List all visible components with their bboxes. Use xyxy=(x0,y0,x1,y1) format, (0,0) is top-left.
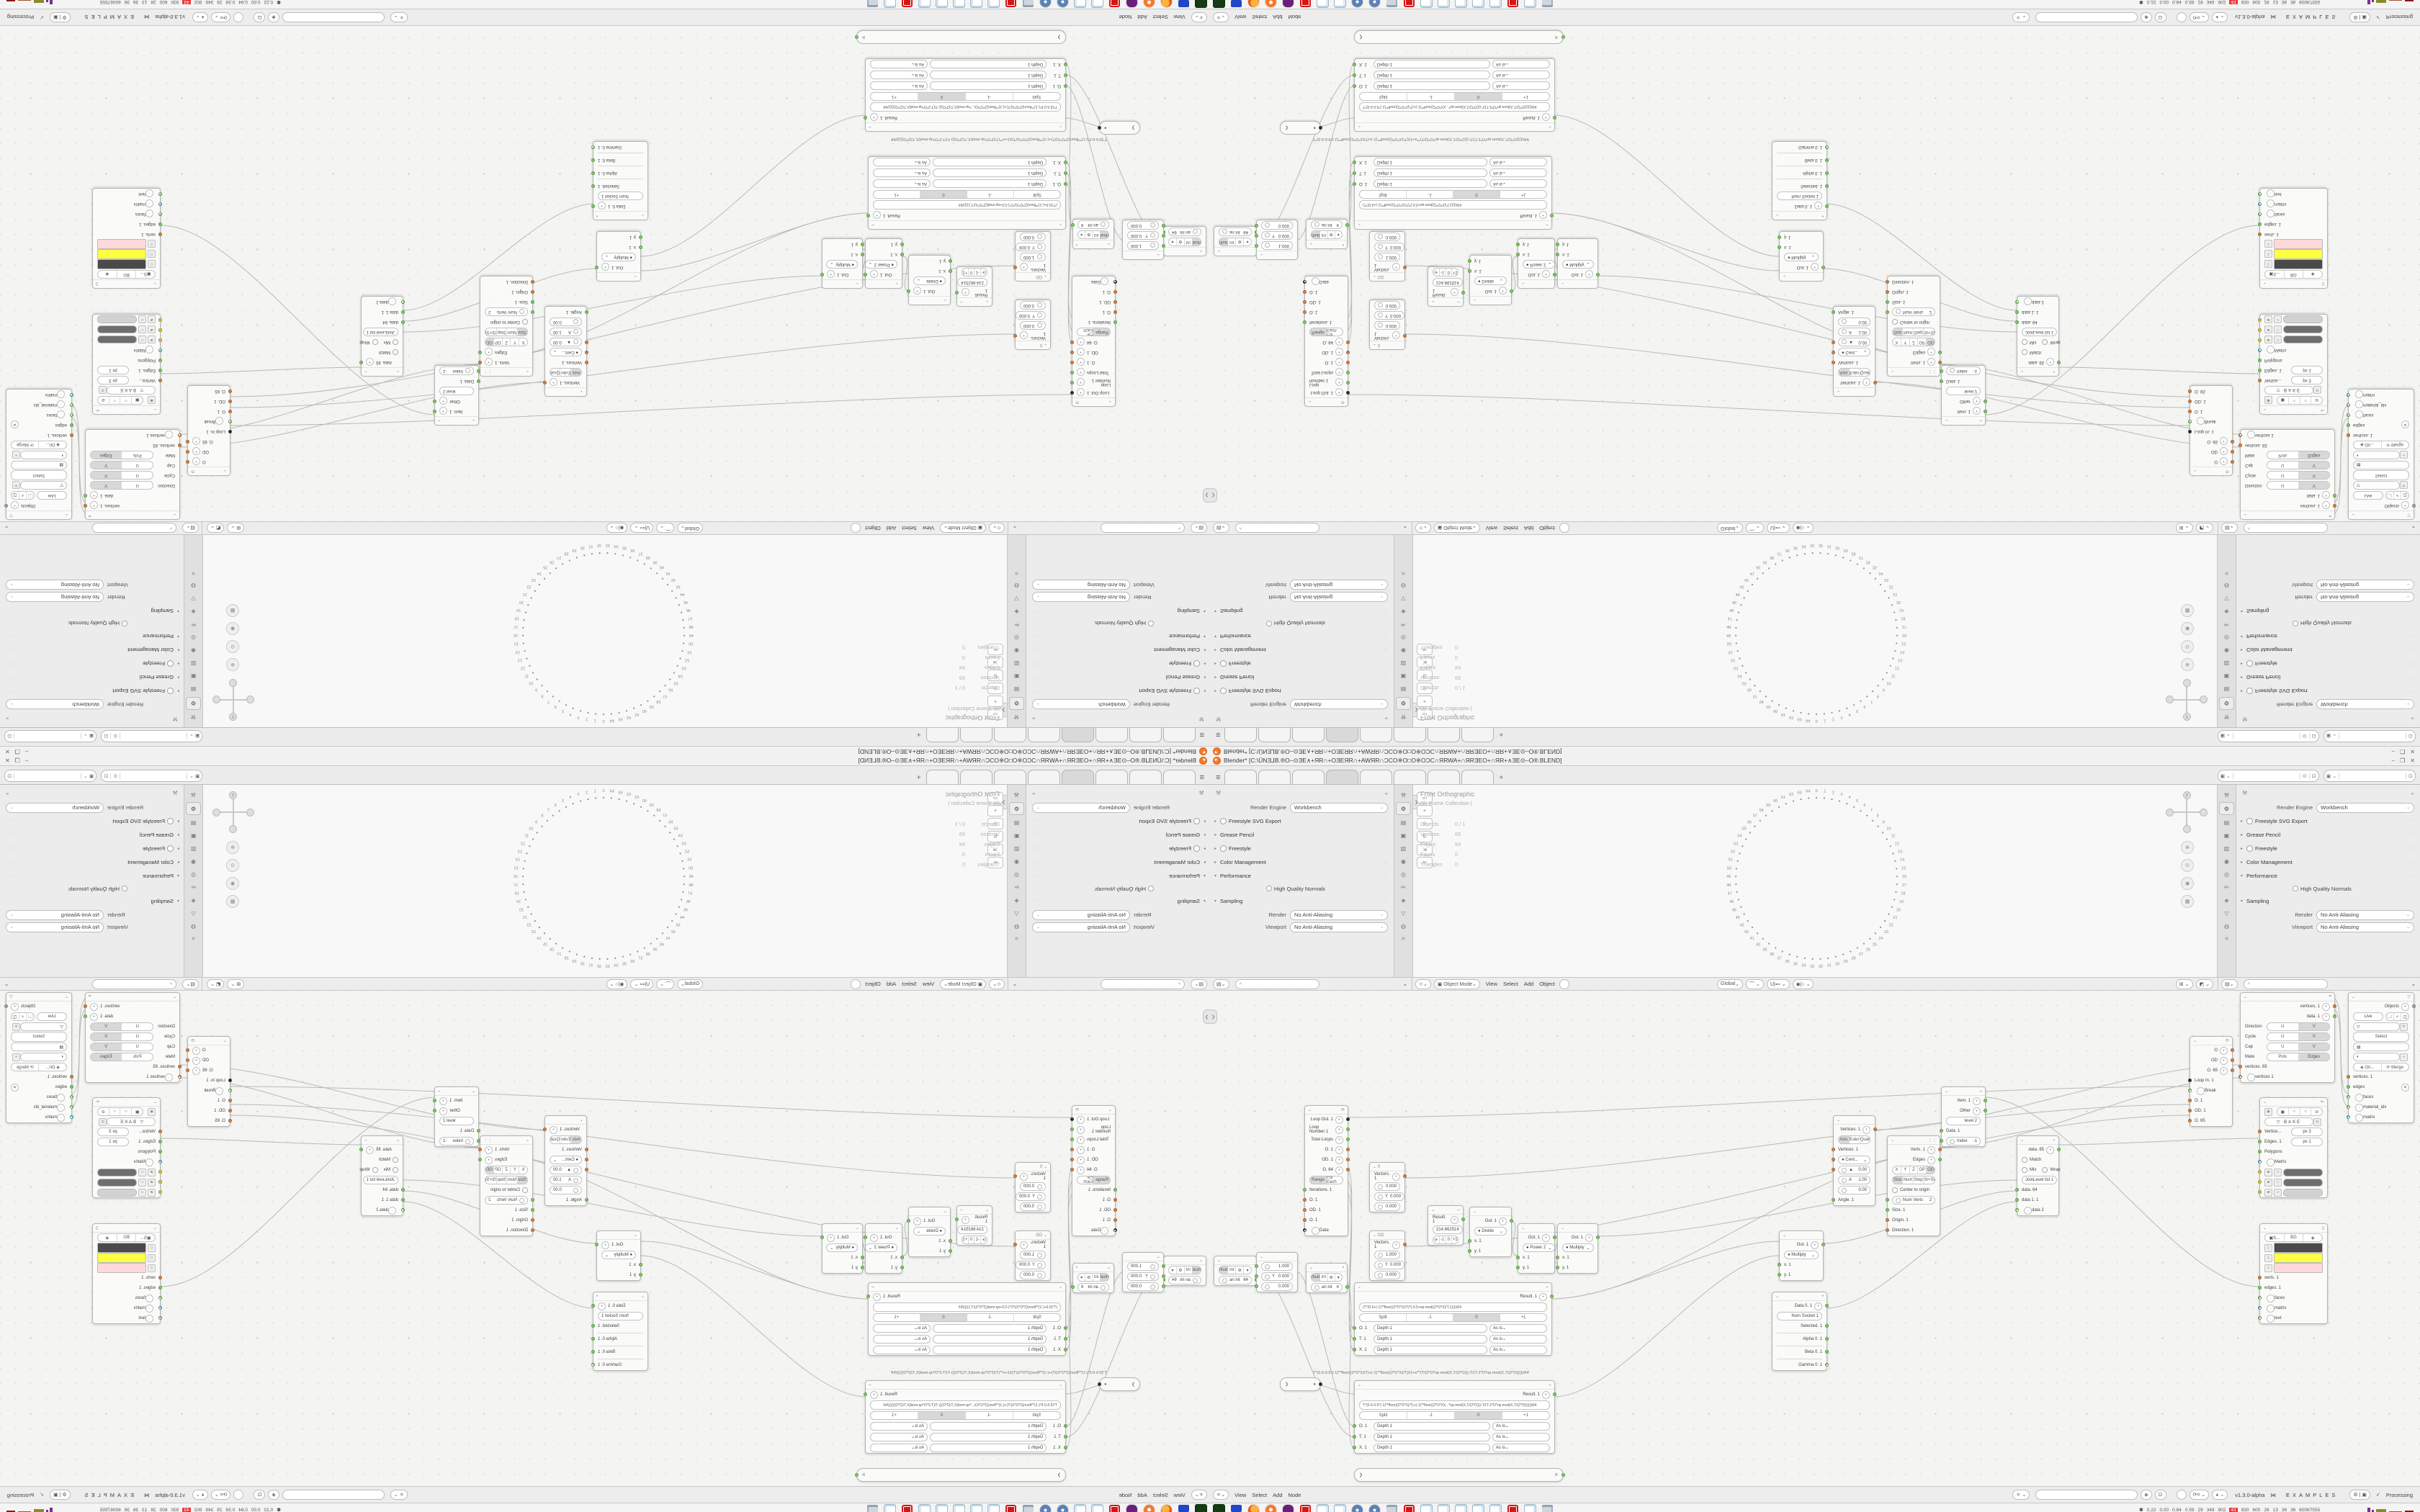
properties-tab-icon[interactable]: ◍ xyxy=(187,920,200,932)
segment-Split[interactable]: Split xyxy=(1360,1412,1407,1419)
taskbar-icon-gimp[interactable] xyxy=(1126,0,1137,8)
px-field[interactable]: px 1 xyxy=(2291,1138,2323,1146)
node-vector-0[interactable]: ⌄ 0Vectors. 1▾0.000Y0.0000.000 xyxy=(1369,1162,1405,1212)
segment-+1[interactable]: +1 xyxy=(871,1412,918,1419)
prop-check-6[interactable]: High Quality Normals xyxy=(2293,883,2420,894)
swatch-tool-icon[interactable]: ▯ xyxy=(2264,1264,2272,1272)
workspace-tab[interactable] xyxy=(1326,770,1358,784)
expand-arrow-icon[interactable]: ▾ xyxy=(1214,899,1220,904)
gizmo-ball[interactable]: Z xyxy=(2183,713,2191,721)
slider-icon[interactable]: ▱ xyxy=(2274,1179,2282,1187)
workspace-tab[interactable] xyxy=(1224,728,1257,742)
node-header[interactable]: ⌄ ⟳ xyxy=(2190,467,2232,475)
dropdown-arrow-icon[interactable]: ▾ xyxy=(2322,492,2330,500)
menu-view[interactable]: View xyxy=(923,981,934,987)
live-icon[interactable]: ◫ xyxy=(12,492,19,499)
live-icon[interactable]: ⚡ xyxy=(2394,492,2402,499)
node-vector-od[interactable]: ⌄ ODVectors. 1▾1.000Y0.0000.000 xyxy=(1015,1230,1051,1281)
wrap-select[interactable]: As is ⌄ xyxy=(873,180,931,189)
taskbar-icon-note[interactable] xyxy=(1473,1505,1484,1512)
node-formula-2[interactable]: ⌄ ⌐Result. 1▾T*(0.5-0.5*(-1)**floor((2*O… xyxy=(865,58,1066,132)
live-button[interactable]: Live xyxy=(37,1012,67,1021)
prop-section-freestyle-svg-export[interactable]: ▸Freestyle SVG Export:::: xyxy=(2241,684,2414,698)
depth-field[interactable]: Depth 1 xyxy=(1373,1335,1487,1344)
segment-⚙[interactable]: ⚙ xyxy=(1176,1266,1184,1274)
menu-view[interactable]: View xyxy=(1174,1492,1186,1498)
properties-tab-icon[interactable]: ◍ xyxy=(2220,920,2233,932)
taskbar-icon-cd[interactable] xyxy=(1352,0,1363,8)
node-header[interactable]: ⌄ ⌗ xyxy=(2241,993,2334,1002)
color-slider[interactable] xyxy=(2283,326,2323,334)
number-field[interactable]: Num Verts2 xyxy=(485,1196,528,1205)
radio-toggle[interactable] xyxy=(2246,818,2253,824)
wrap-select[interactable]: As is ⌄ xyxy=(1492,60,1550,69)
node-formula-1[interactable]: ⌄ ⌐Result. 1▾(T*(0.5+(-1)**floor((2*O*X)… xyxy=(868,1282,1066,1356)
number-field[interactable]: 0.000 xyxy=(1374,1182,1400,1191)
scene-name-field[interactable] xyxy=(120,770,187,781)
properties-tab-icon[interactable]: ◉ xyxy=(2220,645,2233,657)
dropdown-arrow-icon[interactable]: ▾ xyxy=(870,114,878,122)
node-header[interactable]: ⌄ xyxy=(1834,387,1875,396)
editor-type-button[interactable]: ▤ ⌄ xyxy=(2221,523,2238,534)
taskbar-icon-note[interactable] xyxy=(1473,0,1484,8)
checkbox[interactable] xyxy=(522,319,528,325)
editor-type-button[interactable]: ⚛ ⌄ xyxy=(1213,12,1229,22)
menu-select[interactable]: Select xyxy=(1153,1492,1168,1498)
segment-Split[interactable]: Split xyxy=(1013,191,1060,198)
formula-input[interactable]: (T*(0.5+(-1)**floor((2*O*X)/T)*(-0.5+np.… xyxy=(1359,1302,1547,1312)
collapsed-node-0[interactable]: ❯● xyxy=(1280,121,1321,135)
taskbar-icon-gimp[interactable] xyxy=(1283,1505,1294,1512)
prop-section-freestyle-svg-export[interactable]: ▸Freestyle SVG Export:::: xyxy=(6,684,179,698)
taskbar-icon-blender[interactable] xyxy=(1265,0,1276,8)
node-header[interactable]: ⌄ xyxy=(1257,1253,1297,1261)
properties-tab-icon[interactable]: ⚙ xyxy=(186,802,201,815)
menu-burger-icon[interactable]: ≡ xyxy=(1200,730,1204,739)
dropdown-arrow-icon[interactable]: ▾ xyxy=(1973,397,1981,405)
taskbar-icon-cd[interactable] xyxy=(1057,0,1068,8)
shield-button[interactable]: ◈ xyxy=(268,1490,279,1500)
prop-select[interactable]: No Anti-Aliasing⌄ xyxy=(2316,922,2414,932)
segment-For Each[interactable]: For Each xyxy=(1077,1176,1093,1184)
menu-add[interactable]: Add xyxy=(1524,981,1533,987)
viewport-nav-icon[interactable]: ▦ xyxy=(2181,604,2194,617)
properties-tab-icon[interactable]: ▥ xyxy=(187,842,200,854)
prop-check-6[interactable]: High Quality Normals xyxy=(2293,618,2420,629)
menu-select[interactable]: Select xyxy=(902,525,917,531)
taskbar-icon-note[interactable] xyxy=(1075,0,1085,8)
expand-arrow-icon[interactable]: ▸ xyxy=(174,661,179,666)
segment-OD[interactable]: OD xyxy=(485,1166,493,1174)
properties-tab-icon[interactable]: ⌗ xyxy=(1397,933,1410,945)
prop-section-grease-pencil[interactable]: ▸Grease Pencil:::: xyxy=(6,670,179,684)
properties-tab-icon[interactable]: ◎ xyxy=(187,868,200,880)
workspace-tab[interactable] xyxy=(994,728,1026,742)
icon-segment[interactable]: ○ xyxy=(2300,1108,2312,1115)
number-field[interactable]: A1.00 xyxy=(1838,328,1870,336)
refresh-icon[interactable]: ◎ xyxy=(99,387,107,395)
taskbar-icon-note[interactable] xyxy=(954,1505,964,1512)
radio-toggle[interactable] xyxy=(1193,818,1200,824)
segment-+1[interactable]: +1 xyxy=(1452,1236,1458,1243)
sverchok-panel-buttons[interactable]: ⚙ | ▣ xyxy=(50,1490,71,1500)
viewlayer-name-field[interactable] xyxy=(2339,770,2406,781)
dropdown-arrow-icon[interactable]: ▾ xyxy=(1811,264,1819,271)
segment-U[interactable]: U xyxy=(122,1023,153,1030)
sbg-S[interactable]: ▣S... xyxy=(2265,271,2285,278)
node-header[interactable]: ⌄ ▽ xyxy=(2349,993,2414,1002)
dropdown-arrow-icon[interactable]: ▾ xyxy=(192,438,200,446)
dropdown-arrow-icon[interactable]: ▾ xyxy=(1392,332,1400,340)
segment-For Each[interactable]: For Each xyxy=(1077,328,1093,336)
wrap-select[interactable]: As is ⌄ xyxy=(1492,82,1550,91)
snap-widget[interactable]: ◉|○ ⌄ xyxy=(1793,523,1814,534)
checkbox[interactable] xyxy=(393,339,398,345)
checkbox[interactable] xyxy=(2022,1157,2027,1163)
node-loop-in[interactable]: ⌄ ⟳O▾OD▾O. 65▾Loop In. 1◦BreakO. 1OD. 1O… xyxy=(187,1036,230,1127)
properties-tab-icon[interactable]: ⚙ xyxy=(1009,697,1024,710)
node-header[interactable]: ⌄ xyxy=(1164,247,1206,256)
number-field[interactable]: 0.00 xyxy=(1838,318,1870,326)
menu-node[interactable]: Node xyxy=(1289,14,1301,21)
taskbar-icon-gear[interactable] xyxy=(1300,1505,1311,1512)
depth-field[interactable]: Depth 1 xyxy=(930,82,1047,91)
segment-0[interactable]: 0 xyxy=(920,1314,967,1321)
checkbox[interactable] xyxy=(2042,339,2048,345)
box-button[interactable]: ⊡ xyxy=(254,12,265,22)
node-math-result[interactable]: ⌄ ⌐Result. 1▾214.662514⟳-10+1 xyxy=(1428,266,1464,307)
toggle-Ori[interactable]: ◈ Ori... xyxy=(2354,1063,2382,1071)
mode-selector[interactable]: ▣ Object Mode ⌄ xyxy=(940,979,986,989)
node-formula-2[interactable]: ⌄ ⌐Result. 1▾T*(0.5-0.5*(-1)**floor((2*O… xyxy=(1354,1380,1555,1454)
number-field[interactable]: 0.000 xyxy=(1261,1282,1293,1291)
radio-toggle[interactable] xyxy=(1220,660,1227,667)
add-workspace-button[interactable]: + xyxy=(917,730,921,738)
color-swatch[interactable] xyxy=(97,239,146,249)
color-slider[interactable] xyxy=(2283,316,2323,324)
enum-select[interactable]: ● Power 2⌄ xyxy=(865,260,897,269)
node-header[interactable]: ⌄ OD xyxy=(1016,1231,1050,1240)
properties-tab-icon[interactable]: ⚙ xyxy=(2219,697,2234,710)
number-field[interactable]: Y0.000 xyxy=(1127,231,1159,240)
properties-tab-icon[interactable]: ⚙ xyxy=(2219,802,2234,815)
depth-field[interactable]: Depth 1 xyxy=(1373,1444,1490,1452)
node-header[interactable]: ⌄ ⋮⋮ xyxy=(480,367,532,376)
properties-tab-icon[interactable]: ▣ xyxy=(1010,829,1023,841)
window-control-button[interactable]: ❐ xyxy=(15,748,20,755)
node-header[interactable]: ⌄ ⌗ xyxy=(2241,510,2334,519)
editor-type-button[interactable]: ▤ ⌄ xyxy=(183,523,200,534)
value-field[interactable]: Num Socket 1 xyxy=(1777,192,1822,200)
dropdown-arrow-icon[interactable]: ▾ xyxy=(2322,1013,2330,1021)
segment--1[interactable]: -1 xyxy=(974,269,981,276)
viewport-nav-icon[interactable]: ▦ xyxy=(226,895,239,908)
expand-arrow-icon[interactable]: ▾ xyxy=(174,873,179,878)
taskbar-icon-gear[interactable] xyxy=(1005,0,1016,8)
taskbar-icon-gear[interactable] xyxy=(1507,0,1518,8)
segment-U[interactable]: U xyxy=(2267,482,2299,489)
viewport-nav-icon[interactable]: ⊙ xyxy=(2181,640,2194,653)
properties-tab-icon[interactable]: ▤ xyxy=(1010,684,1023,696)
snap-widget[interactable]: ◉|○ ⌄ xyxy=(606,979,628,989)
window-control-button[interactable]: – xyxy=(2392,757,2395,764)
eye-icon[interactable]: ◉ xyxy=(11,421,19,429)
properties-tab-icon[interactable]: ◎ xyxy=(1397,868,1410,880)
live-icon[interactable]: 🗔 xyxy=(2386,492,2394,499)
taskbar-icon-calc[interactable] xyxy=(1386,1505,1397,1512)
segment-U[interactable]: U xyxy=(122,472,153,479)
segment-Step[interactable]: Step xyxy=(1914,328,1924,336)
node-math-multiply-b[interactable]: ⌄ Out. 1▾● Multiply⌄x. 1y. 1 xyxy=(1779,231,1824,282)
menu-view[interactable]: View xyxy=(923,525,934,531)
sidebar-toggle-arrow[interactable]: ❯ xyxy=(1203,488,1210,503)
menu-object[interactable]: Object xyxy=(865,981,881,987)
node-header[interactable]: ⌄ xyxy=(1518,1224,1554,1233)
taskbar-icon-note[interactable] xyxy=(1421,1505,1432,1512)
segment-▾[interactable]: ▾ xyxy=(1244,1266,1251,1274)
toggle-Merge[interactable]: ⟳ Merge xyxy=(2382,441,2409,449)
expand-arrow-icon[interactable]: ▸ xyxy=(1214,860,1220,865)
node-math-result[interactable]: ⌄ ⌐Result. 1▾214.662514⟳-10+1 xyxy=(956,266,992,307)
prop-select[interactable]: No Anti-Aliasing⌄ xyxy=(1290,580,1388,590)
swatch-tool-icon[interactable]: ▯ xyxy=(148,1264,156,1272)
properties-tab-icon[interactable]: ◍ xyxy=(1397,580,1410,592)
properties-tab-icon[interactable]: ▤ xyxy=(1010,816,1023,828)
live-icon[interactable]: ◫ xyxy=(12,1013,19,1020)
bake-button[interactable]: ▽ BAKE xyxy=(107,1117,156,1126)
dropdown-arrow-icon[interactable]: ▾ xyxy=(1392,1173,1400,1181)
prop-select[interactable]: No Anti-Aliasing⌄ xyxy=(1032,580,1130,590)
checkbox[interactable] xyxy=(372,339,378,345)
segment-Y[interactable]: Y xyxy=(1901,338,1910,346)
wrap-select[interactable]: As is ⌄ xyxy=(873,169,931,178)
node-header[interactable]: ⌄ ⌐ xyxy=(869,1283,1065,1292)
segment-⟳[interactable]: ⟳ xyxy=(980,269,987,276)
dropdown-arrow-icon[interactable]: ▾ xyxy=(1927,348,1935,356)
segment-V[interactable]: V xyxy=(2299,462,2330,469)
select-button[interactable]: Select xyxy=(11,470,67,480)
viewport-nav-icon[interactable]: ⊕ xyxy=(2181,658,2194,671)
segment-+1[interactable]: +1 xyxy=(962,1236,968,1243)
node-header[interactable]: ⌄ ✏ xyxy=(93,405,160,414)
depth-field[interactable]: Depth 1 xyxy=(1373,169,1487,178)
node-math-result[interactable]: ⌄ ⌐Result. 1▾214.662514⟳-10+1 xyxy=(956,1205,992,1246)
depth-field[interactable]: Depth 1 xyxy=(933,158,1047,167)
gizmo-toggle[interactable]: ◕ ⌄ xyxy=(192,1490,208,1500)
checkbox[interactable] xyxy=(2042,1167,2048,1173)
dropdown-arrow-icon[interactable]: ▾ xyxy=(485,348,493,356)
wrap-select[interactable]: As is ⌄ xyxy=(1489,180,1547,189)
node-header[interactable]: ⌄ ✏ xyxy=(2260,405,2327,414)
properties-tab-icon[interactable]: ▤ xyxy=(2220,684,2233,696)
segment-float[interactable]: float xyxy=(1100,1274,1108,1281)
node-list-match[interactable]: ⌄ ⌐data. 65▾MatchMixWrapJoinLevel list 1… xyxy=(2017,296,2059,377)
orientation-selector[interactable]: Global ⌄ xyxy=(1717,979,1743,989)
node-math-power[interactable]: ⌄ Out. 1▾● Power 2⌄x. 1y. 1 xyxy=(1518,1223,1555,1274)
menu-view[interactable]: View xyxy=(1486,981,1497,987)
node-number-4[interactable]: ⌄ •floatint⚙▾an int4 xyxy=(1306,219,1348,249)
node-number-64[interactable]: ⌄ floatint⚙▾an int64 xyxy=(1214,226,1257,256)
number-field[interactable]: 0.000 xyxy=(1020,301,1046,310)
number-field[interactable]: Y0.000 xyxy=(1016,1261,1046,1269)
node-header[interactable]: ⌄ xyxy=(545,387,586,396)
taskbar-icon-cd[interactable] xyxy=(1369,0,1380,8)
swatch-tool-icon[interactable]: ▯ xyxy=(2264,1254,2272,1262)
pin-icon[interactable]: ⌖ xyxy=(1032,791,1036,798)
segment-int[interactable]: int xyxy=(1228,1266,1236,1274)
collapse-arrow[interactable]: ⌄ xyxy=(1403,525,1407,531)
segment-V[interactable]: V xyxy=(91,1023,122,1030)
number-field[interactable]: ▲0.00 xyxy=(1838,1166,1870,1174)
dropdown-arrow-icon[interactable]: ▾ xyxy=(1814,1302,1822,1310)
live-icon[interactable]: ⚡ xyxy=(2394,1013,2402,1020)
taskbar-icon-note[interactable] xyxy=(936,0,947,8)
node-header[interactable]: ⌄ ⋮⋮ xyxy=(480,1136,532,1145)
properties-tab-icon[interactable]: ◉ xyxy=(1397,855,1410,867)
expand-arrow-icon[interactable]: ▸ xyxy=(2241,661,2246,666)
dropdown-arrow-icon[interactable]: ▾ xyxy=(1077,379,1085,387)
taskbar-icon-firefox[interactable] xyxy=(1161,0,1172,8)
node-header[interactable]: ⌄ ▽ xyxy=(6,993,71,1002)
node-header[interactable]: ⌄ ⋮⋮ xyxy=(1888,367,1940,376)
wrap-select[interactable]: As is ⌄ xyxy=(870,60,928,69)
copy-icon[interactable]: ⊡ xyxy=(102,773,111,779)
node-header[interactable]: ⌄ ⟳ xyxy=(1072,397,1115,406)
segment-St+SI[interactable]: St+SI xyxy=(485,328,496,336)
editor-type-button[interactable]: ⊹ ⌄ xyxy=(989,979,1005,989)
workspace-tab[interactable] xyxy=(1428,728,1460,742)
pin-icon[interactable]: ⌖ xyxy=(1032,714,1036,721)
node-header[interactable]: ⌄ • xyxy=(1307,240,1347,248)
dropdown-arrow-icon[interactable]: ▾ xyxy=(1499,287,1507,295)
dropdown-arrow-icon[interactable]: ▾ xyxy=(598,202,606,210)
window-control-button[interactable]: ❐ xyxy=(2400,757,2405,764)
node-header[interactable]: ⌄ ⌐ xyxy=(869,220,1065,229)
shield-button[interactable]: ◈ xyxy=(2141,1490,2151,1500)
prop-section-color-management[interactable]: ▸Color Management:::: xyxy=(2241,855,2414,869)
snap-widget[interactable]: ◉|○ ⌄ xyxy=(606,523,628,534)
header-circle-widget[interactable] xyxy=(1559,979,1569,989)
copy-icon[interactable]: ⊡ xyxy=(2406,734,2415,739)
segment-float[interactable]: float xyxy=(1312,231,1320,238)
segment-Pols[interactable]: Pols xyxy=(122,451,153,459)
taskbar-icon-note[interactable] xyxy=(1438,1505,1449,1512)
snap-widget[interactable]: U|⊷ ⌄ xyxy=(1767,979,1790,989)
taskbar-icon-terminal[interactable] xyxy=(1214,0,1224,8)
node-header[interactable]: ⌄ ⌐ xyxy=(1428,297,1463,306)
properties-tab-icon[interactable]: ✏ xyxy=(2220,619,2233,631)
segment-Num[interactable]: Num xyxy=(1903,328,1913,336)
taskbar-icon-blender[interactable] xyxy=(1144,1505,1155,1512)
number-field[interactable]: Y0.000 xyxy=(1261,231,1293,240)
segment-U[interactable]: U xyxy=(122,1033,153,1040)
enum-select[interactable]: ● Divide⌄ xyxy=(1474,276,1507,285)
scene-selector[interactable]: ▣ ⌄⊙⊡ xyxy=(101,730,202,742)
menu-add[interactable]: Add xyxy=(1273,14,1282,21)
collapse-arrow[interactable]: ⌄ xyxy=(1013,525,1017,531)
segment-Edges[interactable]: Edges xyxy=(2299,451,2330,459)
axis-gizmo[interactable]: Z xyxy=(2166,792,2207,832)
slider-icon[interactable]: ▰ xyxy=(2264,1179,2272,1187)
workspace-tab[interactable] xyxy=(1394,728,1426,742)
node-vector-0[interactable]: ⌄ 0Vectors. 1▾0.000Y0.0000.000 xyxy=(1015,300,1051,350)
enum-select[interactable]: ● Cent...⌄ xyxy=(1838,1156,1870,1164)
node-uv-connection[interactable]: ⌄ ⌗vertices. 1▾data. 1▾DirectionUVCycleU… xyxy=(85,429,180,520)
value-field[interactable]: Num Socket 1 xyxy=(598,192,643,200)
segment-Step[interactable]: Step xyxy=(496,1176,506,1184)
prop-section-freestyle[interactable]: ▸Freestyle:::: xyxy=(1214,842,1388,855)
taskbar-icon-note[interactable] xyxy=(1490,0,1501,8)
shading-toggle[interactable]: ◩ ⌄ xyxy=(207,523,224,534)
node-header[interactable]: ⌄ ⟳ xyxy=(188,1037,230,1045)
properties-tab-icon[interactable]: ⚒ xyxy=(2220,711,2233,723)
workspace-tab[interactable] xyxy=(1292,728,1325,742)
value-field[interactable]: JoinLevel list 1 xyxy=(363,328,398,336)
gizmo-toggle[interactable]: ◕ ⌄ xyxy=(192,12,208,22)
taskbar-icon-note[interactable] xyxy=(1075,1505,1085,1512)
prop-select[interactable]: No Anti-Aliasing⌄ xyxy=(1290,910,1388,920)
node-header[interactable]: ⌄ ⟳ xyxy=(1305,397,1348,406)
window-control-button[interactable]: ✕ xyxy=(2410,757,2415,764)
node-vector-0[interactable]: ⌄ 0Vectors. 1▾0.000Y0.0000.000 xyxy=(1015,1162,1051,1212)
segment-U[interactable]: U xyxy=(2267,1043,2299,1050)
prop-section-sampling[interactable]: ▾Sampling:::: xyxy=(2241,604,2414,618)
properties-tab-icon[interactable]: ⌗ xyxy=(2220,933,2233,945)
icon-segment[interactable]: ○ xyxy=(109,1108,120,1115)
menu-burger-icon[interactable]: ≡ xyxy=(1216,773,1220,782)
enum-select[interactable]: ● Divide⌄ xyxy=(913,276,946,285)
node-header[interactable]: ⌄ ✏ xyxy=(93,1098,160,1107)
segment-float[interactable]: float xyxy=(1192,1266,1201,1274)
node-header[interactable]: ⌄ ⟳ xyxy=(1072,1106,1115,1115)
prop-section-freestyle[interactable]: ▸Freestyle:::: xyxy=(1214,657,1388,670)
properties-tab-icon[interactable]: ◈ xyxy=(2220,606,2233,618)
scene-name-field[interactable] xyxy=(2233,731,2300,742)
node-header[interactable]: ⌄ ▯ xyxy=(2260,1224,2327,1233)
copy-icon[interactable]: ⊡ xyxy=(2309,773,2318,779)
segment-0[interactable]: 0 xyxy=(1455,93,1502,100)
viewport-nav-icon[interactable]: ⊕ xyxy=(226,841,239,854)
color-slider[interactable] xyxy=(97,1169,137,1176)
slider-icon[interactable]: ▱ xyxy=(2274,326,2282,334)
snap-toggle[interactable]: ⟳⌗ ⌄ xyxy=(211,12,231,22)
scene-name-field[interactable] xyxy=(120,731,187,742)
node-header[interactable]: ⌄ xyxy=(1558,1224,1597,1233)
dropdown-arrow-icon[interactable]: ▾ xyxy=(1077,1166,1085,1174)
menu-node[interactable]: Node xyxy=(1289,1492,1301,1498)
expand-arrow-icon[interactable]: ▾ xyxy=(1200,608,1206,613)
taskbar-icon-note[interactable] xyxy=(1335,1505,1345,1512)
dropdown-arrow-icon[interactable]: ▾ xyxy=(1927,1146,1935,1154)
segment-Euler[interactable]: Euler xyxy=(560,369,570,376)
workspace-tab[interactable] xyxy=(1461,728,1494,742)
toggle-Merge[interactable]: ⟳ Merge xyxy=(12,1063,39,1071)
properties-tab-icon[interactable]: ▥ xyxy=(187,658,200,670)
editor-type-button[interactable]: ⊹ ⌄ xyxy=(1415,523,1431,534)
checkbox[interactable] xyxy=(393,349,398,355)
color-slider[interactable] xyxy=(97,1189,137,1197)
properties-tab-icon[interactable]: ◍ xyxy=(1010,920,1023,932)
prop-section-freestyle-svg-export[interactable]: ▸Freestyle SVG Export:::: xyxy=(1032,814,1206,828)
icon-segment[interactable]: ⊘ xyxy=(2311,1108,2322,1115)
workspace-tab[interactable] xyxy=(1428,770,1460,784)
node-list-item[interactable]: ⌄ ⌐Item. 1▾Other▾level 2Data. 1Index-1 xyxy=(1941,365,1986,426)
dropdown-arrow-icon[interactable]: ▾ xyxy=(601,264,609,271)
properties-tab-icon[interactable]: ▥ xyxy=(2220,842,2233,854)
slider-icon[interactable]: ▰ xyxy=(148,1179,156,1187)
radio-toggle[interactable] xyxy=(2246,688,2253,694)
gizmo-ball[interactable] xyxy=(212,696,220,703)
